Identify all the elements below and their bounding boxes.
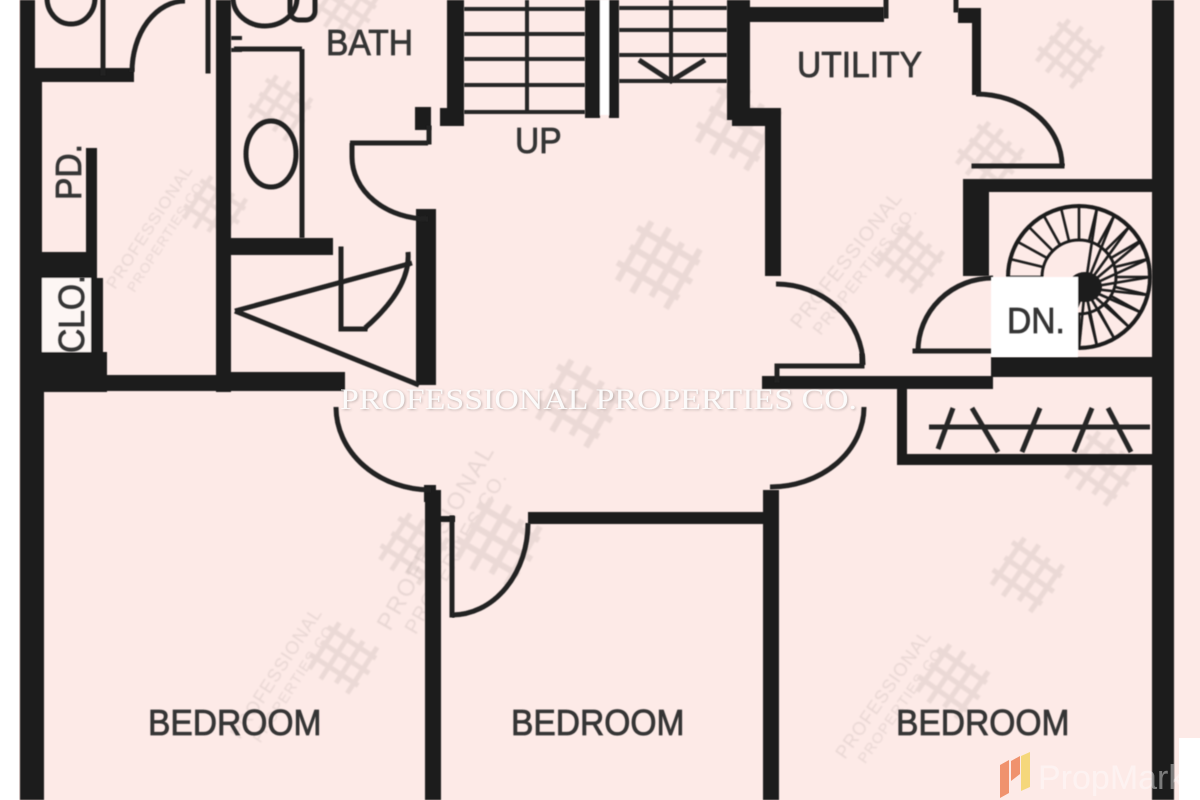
- svg-text:BEDROOM: BEDROOM: [896, 703, 1069, 744]
- svg-text:UP: UP: [515, 121, 562, 162]
- svg-text:BEDROOM: BEDROOM: [511, 703, 684, 744]
- svg-text:PD.: PD.: [49, 144, 90, 200]
- svg-text:PROFESSIONAL PROPERTIES CO.: PROFESSIONAL PROPERTIES CO.: [340, 383, 857, 416]
- svg-text:PropMark: PropMark: [1038, 759, 1186, 797]
- svg-text:BEDROOM: BEDROOM: [148, 703, 321, 744]
- svg-text:BATH: BATH: [326, 23, 413, 64]
- svg-text:CLO.: CLO.: [52, 275, 93, 353]
- svg-text:UTILITY: UTILITY: [797, 45, 922, 86]
- svg-text:DN.: DN.: [1007, 301, 1065, 342]
